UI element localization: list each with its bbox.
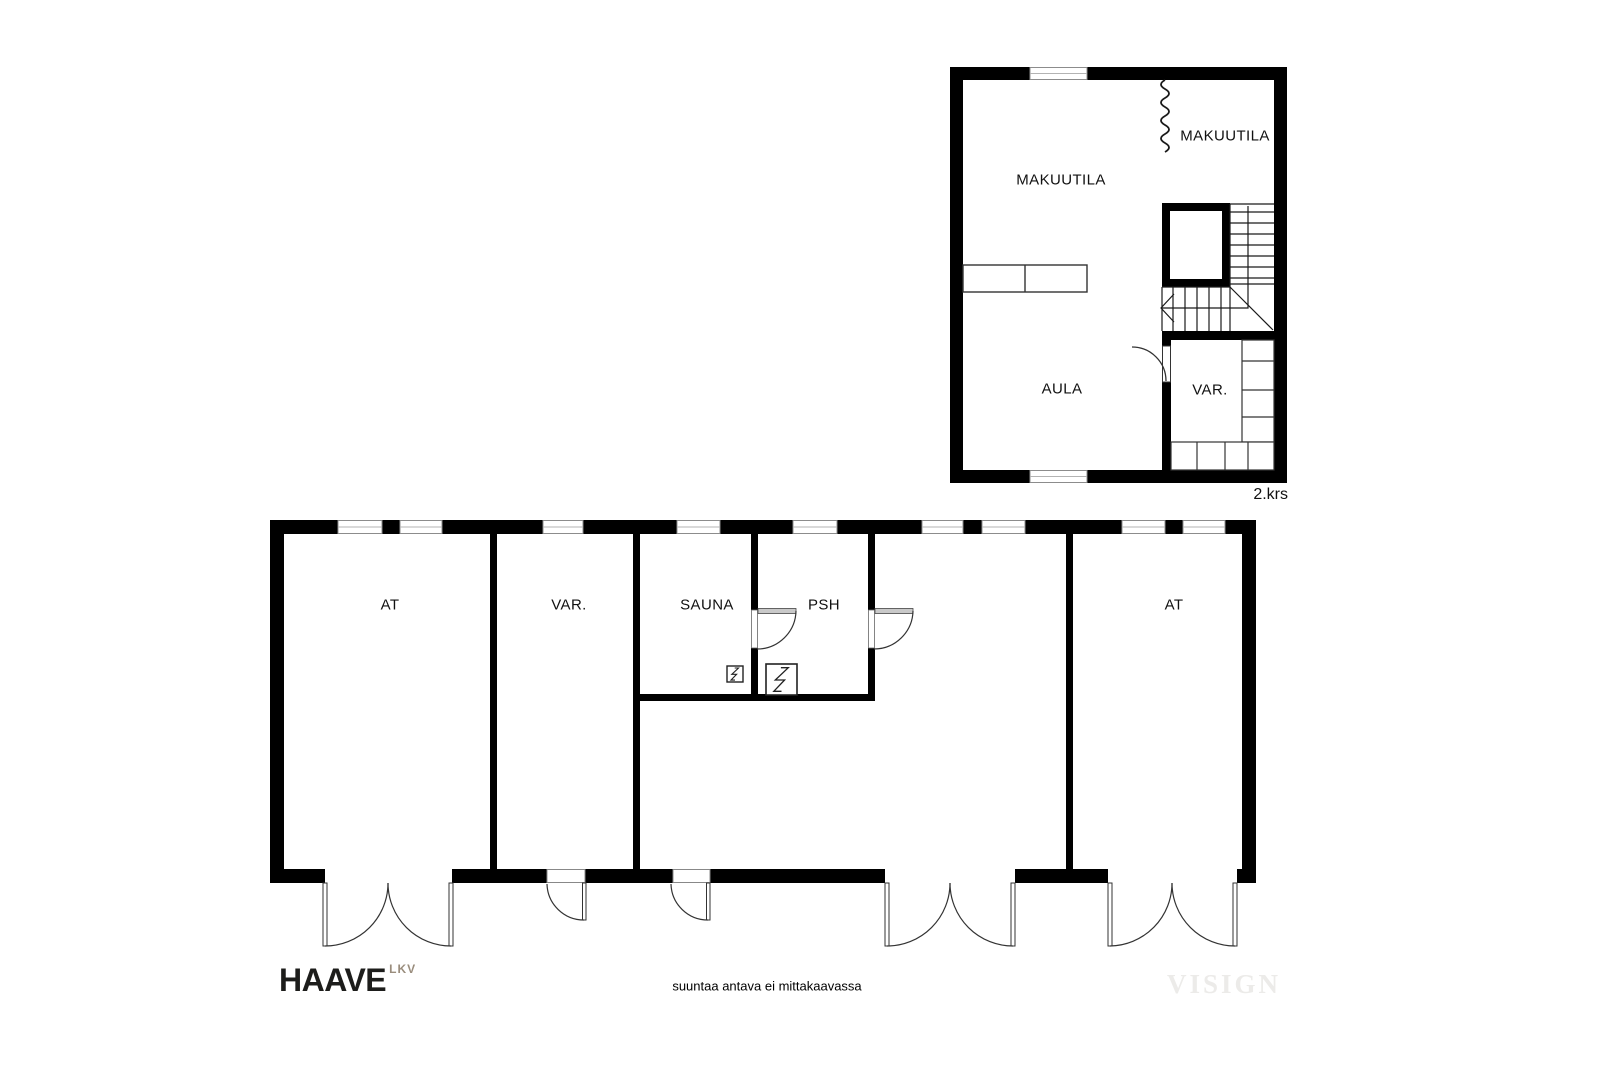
sauna-exterior-door xyxy=(671,870,710,921)
watermark-text: VISIGN xyxy=(1167,969,1281,1000)
room-label-psh: PSH xyxy=(808,597,840,614)
var-shelves xyxy=(1171,340,1274,470)
door-swing-arc xyxy=(757,611,796,649)
window-icon xyxy=(338,521,382,534)
door-swing-arc xyxy=(547,884,584,920)
window-icon xyxy=(982,521,1025,534)
room-label-var-lower: VAR. xyxy=(551,597,587,614)
door-swing-arc xyxy=(887,883,950,946)
lower-exterior-walls xyxy=(270,520,1256,883)
var-exterior-door xyxy=(547,870,586,921)
door-swing-arc xyxy=(1132,347,1166,381)
water-heater-icon xyxy=(766,664,797,695)
floor-tag-2krs: 2.krs xyxy=(1230,486,1288,504)
brand-suffix: LKV xyxy=(389,962,416,976)
door-swing-arc xyxy=(874,611,913,649)
window-icon xyxy=(400,521,442,534)
door-swing-arc xyxy=(1110,883,1172,946)
window-icon xyxy=(1030,68,1087,80)
garage-door-left xyxy=(323,883,453,946)
window-icon xyxy=(922,521,963,534)
floor-plan-canvas: MAKUUTILA MAKUUTILA AULA VAR. 2.krs AT V… xyxy=(0,0,1600,1067)
window-icon xyxy=(543,521,583,534)
lower-interior-walls xyxy=(490,534,1073,869)
window-icon xyxy=(1122,521,1165,534)
window-icon xyxy=(793,521,837,534)
window-icon xyxy=(1183,521,1225,534)
room-label-makuutila-left: MAKUUTILA xyxy=(1016,172,1105,189)
room-label-aula: AULA xyxy=(1042,381,1083,398)
disclaimer-text: suuntaa antava ei mittakaavassa xyxy=(672,979,861,994)
lower-floor-plan xyxy=(270,520,1256,946)
room-label-at-right: AT xyxy=(1165,597,1184,614)
open-partition-wave-icon xyxy=(1161,80,1169,152)
sauna-psh-door xyxy=(752,609,797,650)
stair-closet xyxy=(1162,203,1230,287)
room-label-var-upper: VAR. xyxy=(1192,382,1228,399)
window-icon xyxy=(677,521,720,534)
floor-plan-drawing xyxy=(0,0,1600,1067)
sauna-stove-icon xyxy=(727,666,743,682)
brand-logo: HAAVELKV xyxy=(279,963,416,996)
window-icon xyxy=(1030,471,1087,483)
psh-hall-door xyxy=(869,609,914,650)
door-swing-arc xyxy=(950,883,1013,946)
garage-door-right xyxy=(1108,883,1237,946)
room-label-at-left: AT xyxy=(381,597,400,614)
wardrobe xyxy=(963,265,1087,292)
garage-door-middle xyxy=(885,883,1015,946)
door-swing-arc xyxy=(325,883,388,946)
brand-name: HAAVE xyxy=(279,962,386,998)
door-swing-arc xyxy=(388,883,451,946)
room-label-sauna: SAUNA xyxy=(680,597,734,614)
door-swing-arc xyxy=(1172,883,1235,946)
door-swing-arc xyxy=(671,884,708,920)
var-door xyxy=(1132,346,1171,382)
room-label-makuutila-right: MAKUUTILA xyxy=(1180,128,1269,145)
